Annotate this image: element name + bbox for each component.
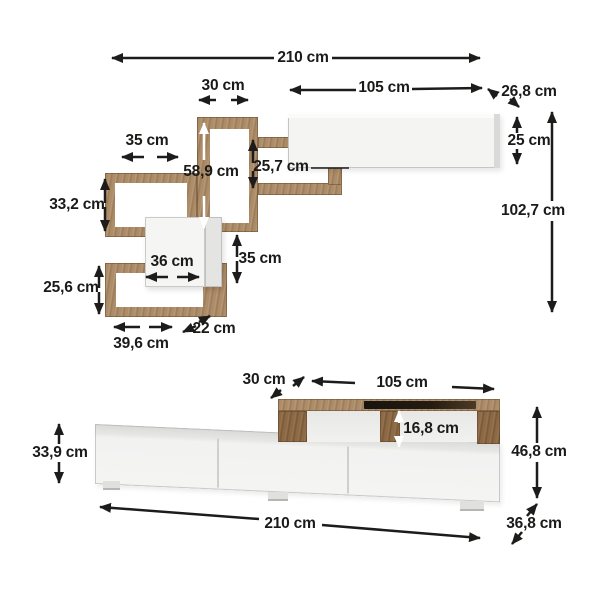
- dim-wall-lower-box-width-label: 39,6 cm: [113, 335, 168, 353]
- dim-wall-upper-box-height-label: 33,2 cm: [49, 196, 104, 214]
- dim-wall-cabinet-height-label: 25 cm: [508, 132, 551, 150]
- dim-wall-cube-height-label: 35 cm: [239, 250, 282, 268]
- dim-wall-column-width-label: 30 cm: [202, 77, 245, 95]
- dim-stand-total-width-label: 210 cm: [264, 515, 315, 533]
- wall-cabinet: [288, 114, 500, 168]
- tv-cabinet-foot-right: [460, 501, 484, 511]
- dim-stand-riser-opening-height-label: 16,8 cm: [403, 420, 458, 438]
- wall-shelf-connector-top: [258, 137, 290, 148]
- dim-stand-cabinet-height-label: 33,9 cm: [32, 444, 87, 462]
- dim-wall-cabinet-depth-label: 26,8 cm: [501, 83, 556, 101]
- tv-riser-leg-right: [477, 411, 500, 444]
- dim-wall-total-height-label: 102,7 cm: [501, 202, 565, 220]
- wall-cube: [145, 217, 222, 287]
- dim-wall-lower-box-height-label: 25,6 cm: [43, 279, 98, 297]
- tv-cabinet-foot-middle: [268, 492, 288, 501]
- wall-cube-front-face: [145, 217, 205, 287]
- tv-riser-glass-strip: [364, 401, 476, 409]
- wall-cabinet-top-face: [288, 114, 500, 118]
- dim-wall-upper-box-width-label: 35 cm: [126, 132, 169, 150]
- dim-wall-total-width-label: 210 cm: [277, 49, 328, 67]
- dim-stand-total-depth-label: 36,8 cm: [506, 515, 561, 533]
- tv-cabinet-foot-left: [103, 481, 120, 490]
- tv-riser-leg-left: [278, 411, 307, 442]
- tv-riser-divider: [380, 411, 400, 442]
- dim-stand-riser-width-label: 105 cm: [376, 374, 427, 392]
- wall-cube-side-face: [205, 217, 222, 287]
- wall-shelf-upright: [328, 166, 342, 185]
- dim-wall-shelf-gap-label: 25,7 cm: [253, 158, 308, 176]
- dim-wall-shelf-depth-label: 22 cm: [193, 320, 236, 338]
- tv-riser: [278, 399, 500, 443]
- dim-stand-total-height-label: 46,8 cm: [511, 443, 566, 461]
- dim-wall-column-height-label: 58,9 cm: [183, 163, 238, 181]
- wall-cabinet-side-face: [494, 114, 500, 168]
- dim-wall-cube-width-label: 36 cm: [151, 253, 194, 271]
- tv-riser-opening-left: [307, 411, 380, 442]
- dim-stand-riser-depth-label: 30 cm: [243, 371, 286, 389]
- tv-cabinet-door-seam-1: [217, 439, 219, 488]
- tv-cabinet-door-seam-2: [347, 446, 349, 493]
- furniture-dimension-diagram: 210 cm 30 cm 105 cm 26,8 cm 25 cm 102,7 …: [0, 0, 600, 600]
- dim-wall-cabinet-width-label: 105 cm: [358, 79, 409, 97]
